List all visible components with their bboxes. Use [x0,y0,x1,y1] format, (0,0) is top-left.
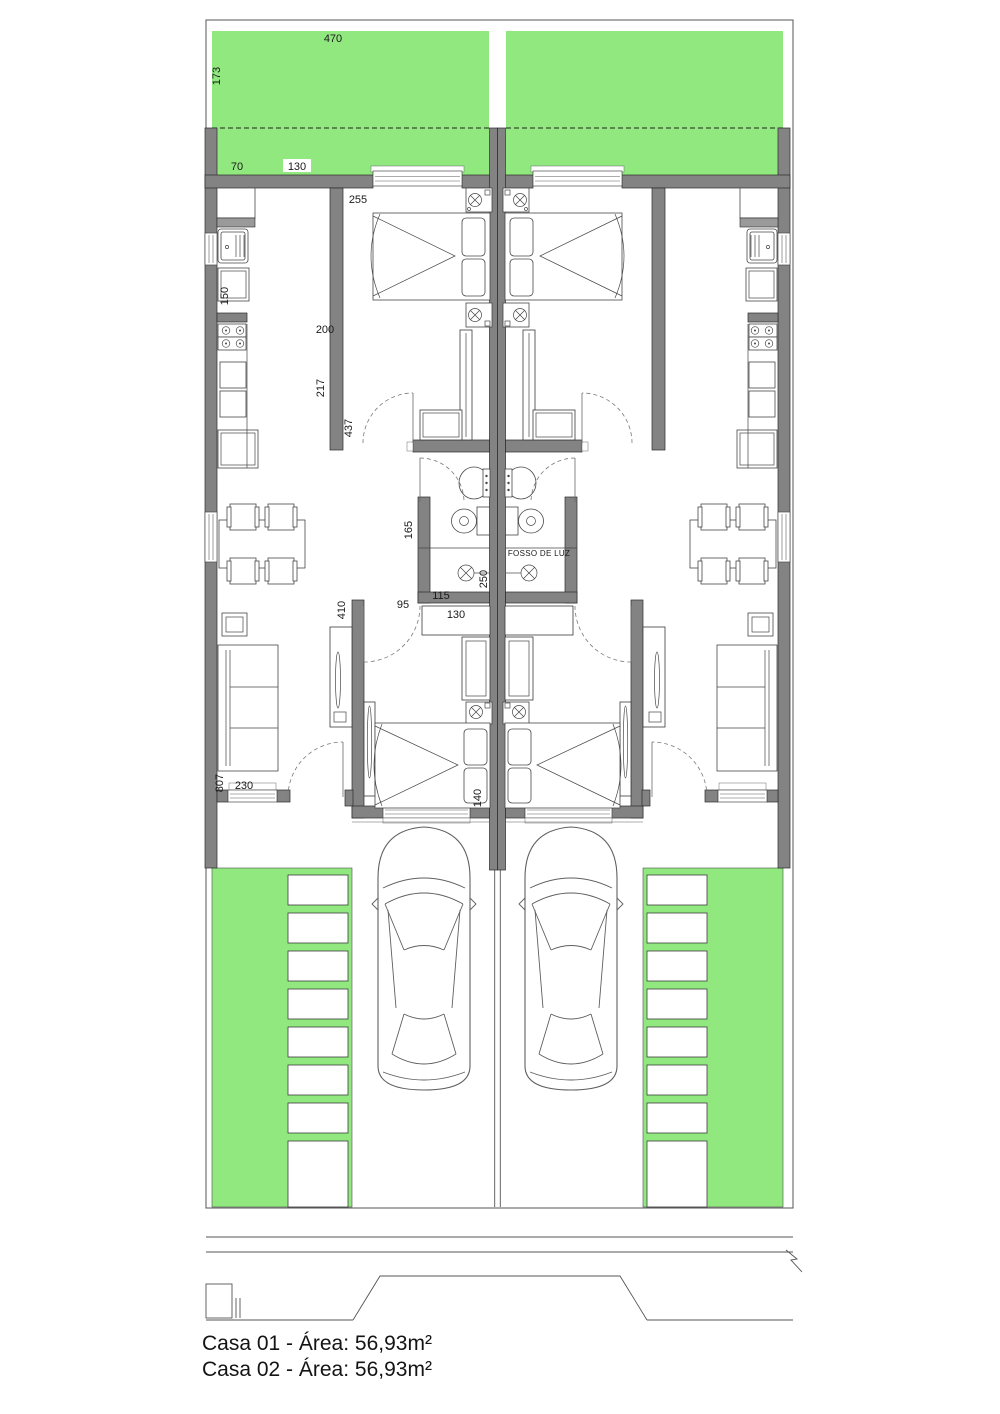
dim-bath-width: 165 [403,521,415,539]
floor-plan-page: 470 173 70 130 255 150 200 217 437 165 1… [0,0,1000,1414]
living-room [218,613,352,771]
car-casa02 [519,827,623,1090]
chair [265,504,297,530]
chair [227,558,259,584]
dim-bedroom1-width: 255 [349,194,367,206]
pillow [464,729,487,765]
dim-laundry: 150 [219,287,231,305]
casa01-area-label: Casa 01 - Área: 56,93m² [202,1332,432,1355]
cabinet [220,362,246,388]
kitchen-laundry [217,188,258,468]
wardrobe-slim [364,702,375,796]
curb-detail [206,1284,232,1318]
dim-front-window: 130 [288,161,306,173]
dim-hall-door: 95 [397,599,409,611]
nightstand-lamp [466,303,492,327]
chair [227,504,259,530]
casa02-area-label: Casa 02 - Área: 56,93m² [202,1358,432,1381]
dim-living-width: 230 [235,780,253,792]
bedroom2 [364,606,492,808]
sofa [218,645,278,771]
nightstand-lamp [466,188,492,212]
dim-bath-inner: 115 [432,590,450,602]
closet-partition [420,410,462,440]
dim-bedroom2-length: 410 [336,601,348,619]
chair [265,558,297,584]
fridge [218,430,258,468]
dining-set [219,504,305,584]
break-line-symbol [786,1250,802,1272]
driveway-ramp [353,1276,647,1320]
nightstand-lamp [466,702,492,724]
dim-closet-width: 130 [447,609,465,621]
bedroom1 [371,188,492,440]
fosso-de-luz-label: FOSSO DE LUZ [508,549,570,558]
front-garden [212,31,489,175]
car-casa01 [372,827,476,1090]
toilet [452,509,477,533]
dim-living-length: 807 [214,774,226,792]
toilet-tank [477,507,490,535]
dim-bedroom1-length: 437 [343,419,355,437]
sidewalk-street [206,1208,802,1320]
area-legend: Casa 01 - Área: 56,93m² Casa 02 - Área: … [202,1332,432,1381]
cabinet [220,391,246,417]
dim-bedroom2-width: 140 [472,789,484,807]
dim-front-setback: 70 [231,161,243,173]
pillow [462,259,485,296]
dim-garden-width: 470 [324,33,342,45]
dim-bath-length: 250 [478,570,490,588]
floor-plan-drawing: 470 173 70 130 255 150 200 217 437 165 1… [0,0,1000,1414]
dim-kitchen-length: 217 [315,379,327,397]
dim-kitchen-width: 200 [316,324,334,336]
dim-garden-depth: 173 [211,67,223,85]
pillow [462,218,485,256]
